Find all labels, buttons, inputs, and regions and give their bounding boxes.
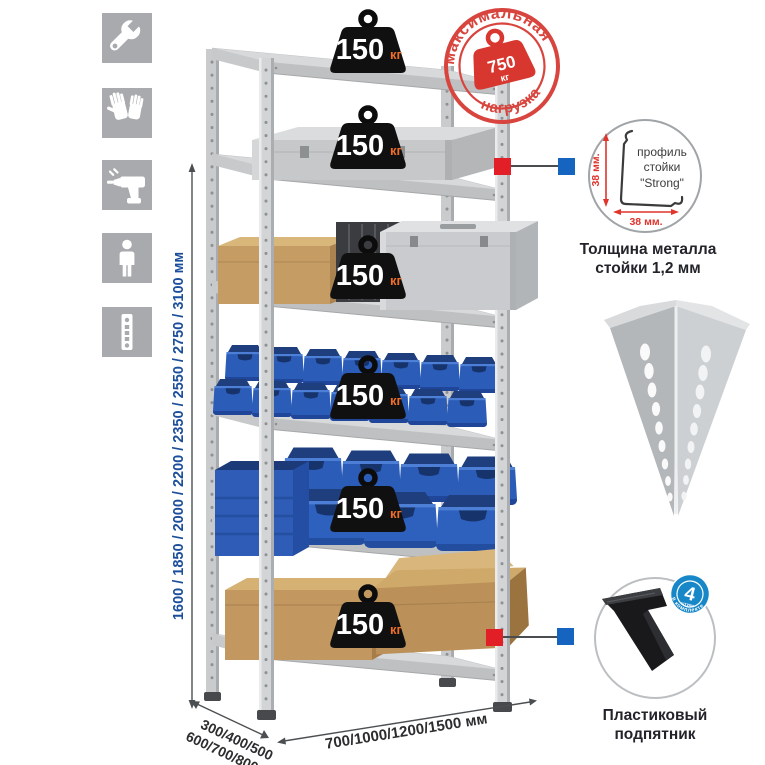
person-icon xyxy=(102,233,152,283)
svg-text:38 мм.: 38 мм. xyxy=(590,153,602,186)
callout-blue-square-top xyxy=(558,158,575,175)
badge-value: 150 xyxy=(336,34,384,66)
callout-red-square-top xyxy=(494,158,511,175)
foot-caption-line2: подпятник xyxy=(614,726,695,743)
profile-label-3: "Strong" xyxy=(640,176,684,190)
svg-text:38 мм.: 38 мм. xyxy=(629,216,662,228)
perforated-strip-icon xyxy=(102,307,152,357)
badge-unit: кг xyxy=(390,273,403,288)
callout-red-square-bottom xyxy=(486,629,503,646)
badge-value: 150 xyxy=(336,130,384,162)
badge-unit: кг xyxy=(390,47,403,62)
gloves-icon xyxy=(102,88,152,138)
profile-caption-line1: Толщина металла xyxy=(580,241,717,258)
foot-caption-line1: Пластиковый xyxy=(603,707,708,724)
badge-unit: кг xyxy=(390,622,403,637)
profile-caption-line2: стойки 1,2 мм xyxy=(595,260,700,277)
wrench-icon xyxy=(102,13,152,63)
badge-unit: кг xyxy=(390,506,403,521)
shelving-unit-illustration: 1600 / 1850 / 2000 / 2200 / 2350 / 2550 … xyxy=(0,0,765,765)
callout-blue-square-bottom xyxy=(557,628,574,645)
badge-unit: кг xyxy=(390,393,403,408)
badge-value: 150 xyxy=(336,609,384,641)
height-dimension-label: 1600 / 1850 / 2000 / 2200 / 2350 / 2550 … xyxy=(171,252,187,620)
badge-value: 150 xyxy=(336,260,384,292)
profile-label-1: профиль xyxy=(637,145,687,159)
plastic-foot-front-left xyxy=(257,710,276,720)
drill-icon xyxy=(102,160,152,210)
badge-value: 150 xyxy=(336,493,384,525)
badge-unit: кг xyxy=(390,143,403,158)
plastic-foot-detail: 4 штуки в комплекте Пластиковый подпятни… xyxy=(595,570,715,743)
badge-value: 150 xyxy=(336,380,384,412)
profile-label-2: стойки xyxy=(644,160,681,174)
product-infographic: 1600 / 1850 / 2000 / 2200 / 2350 / 2550 … xyxy=(0,0,765,765)
